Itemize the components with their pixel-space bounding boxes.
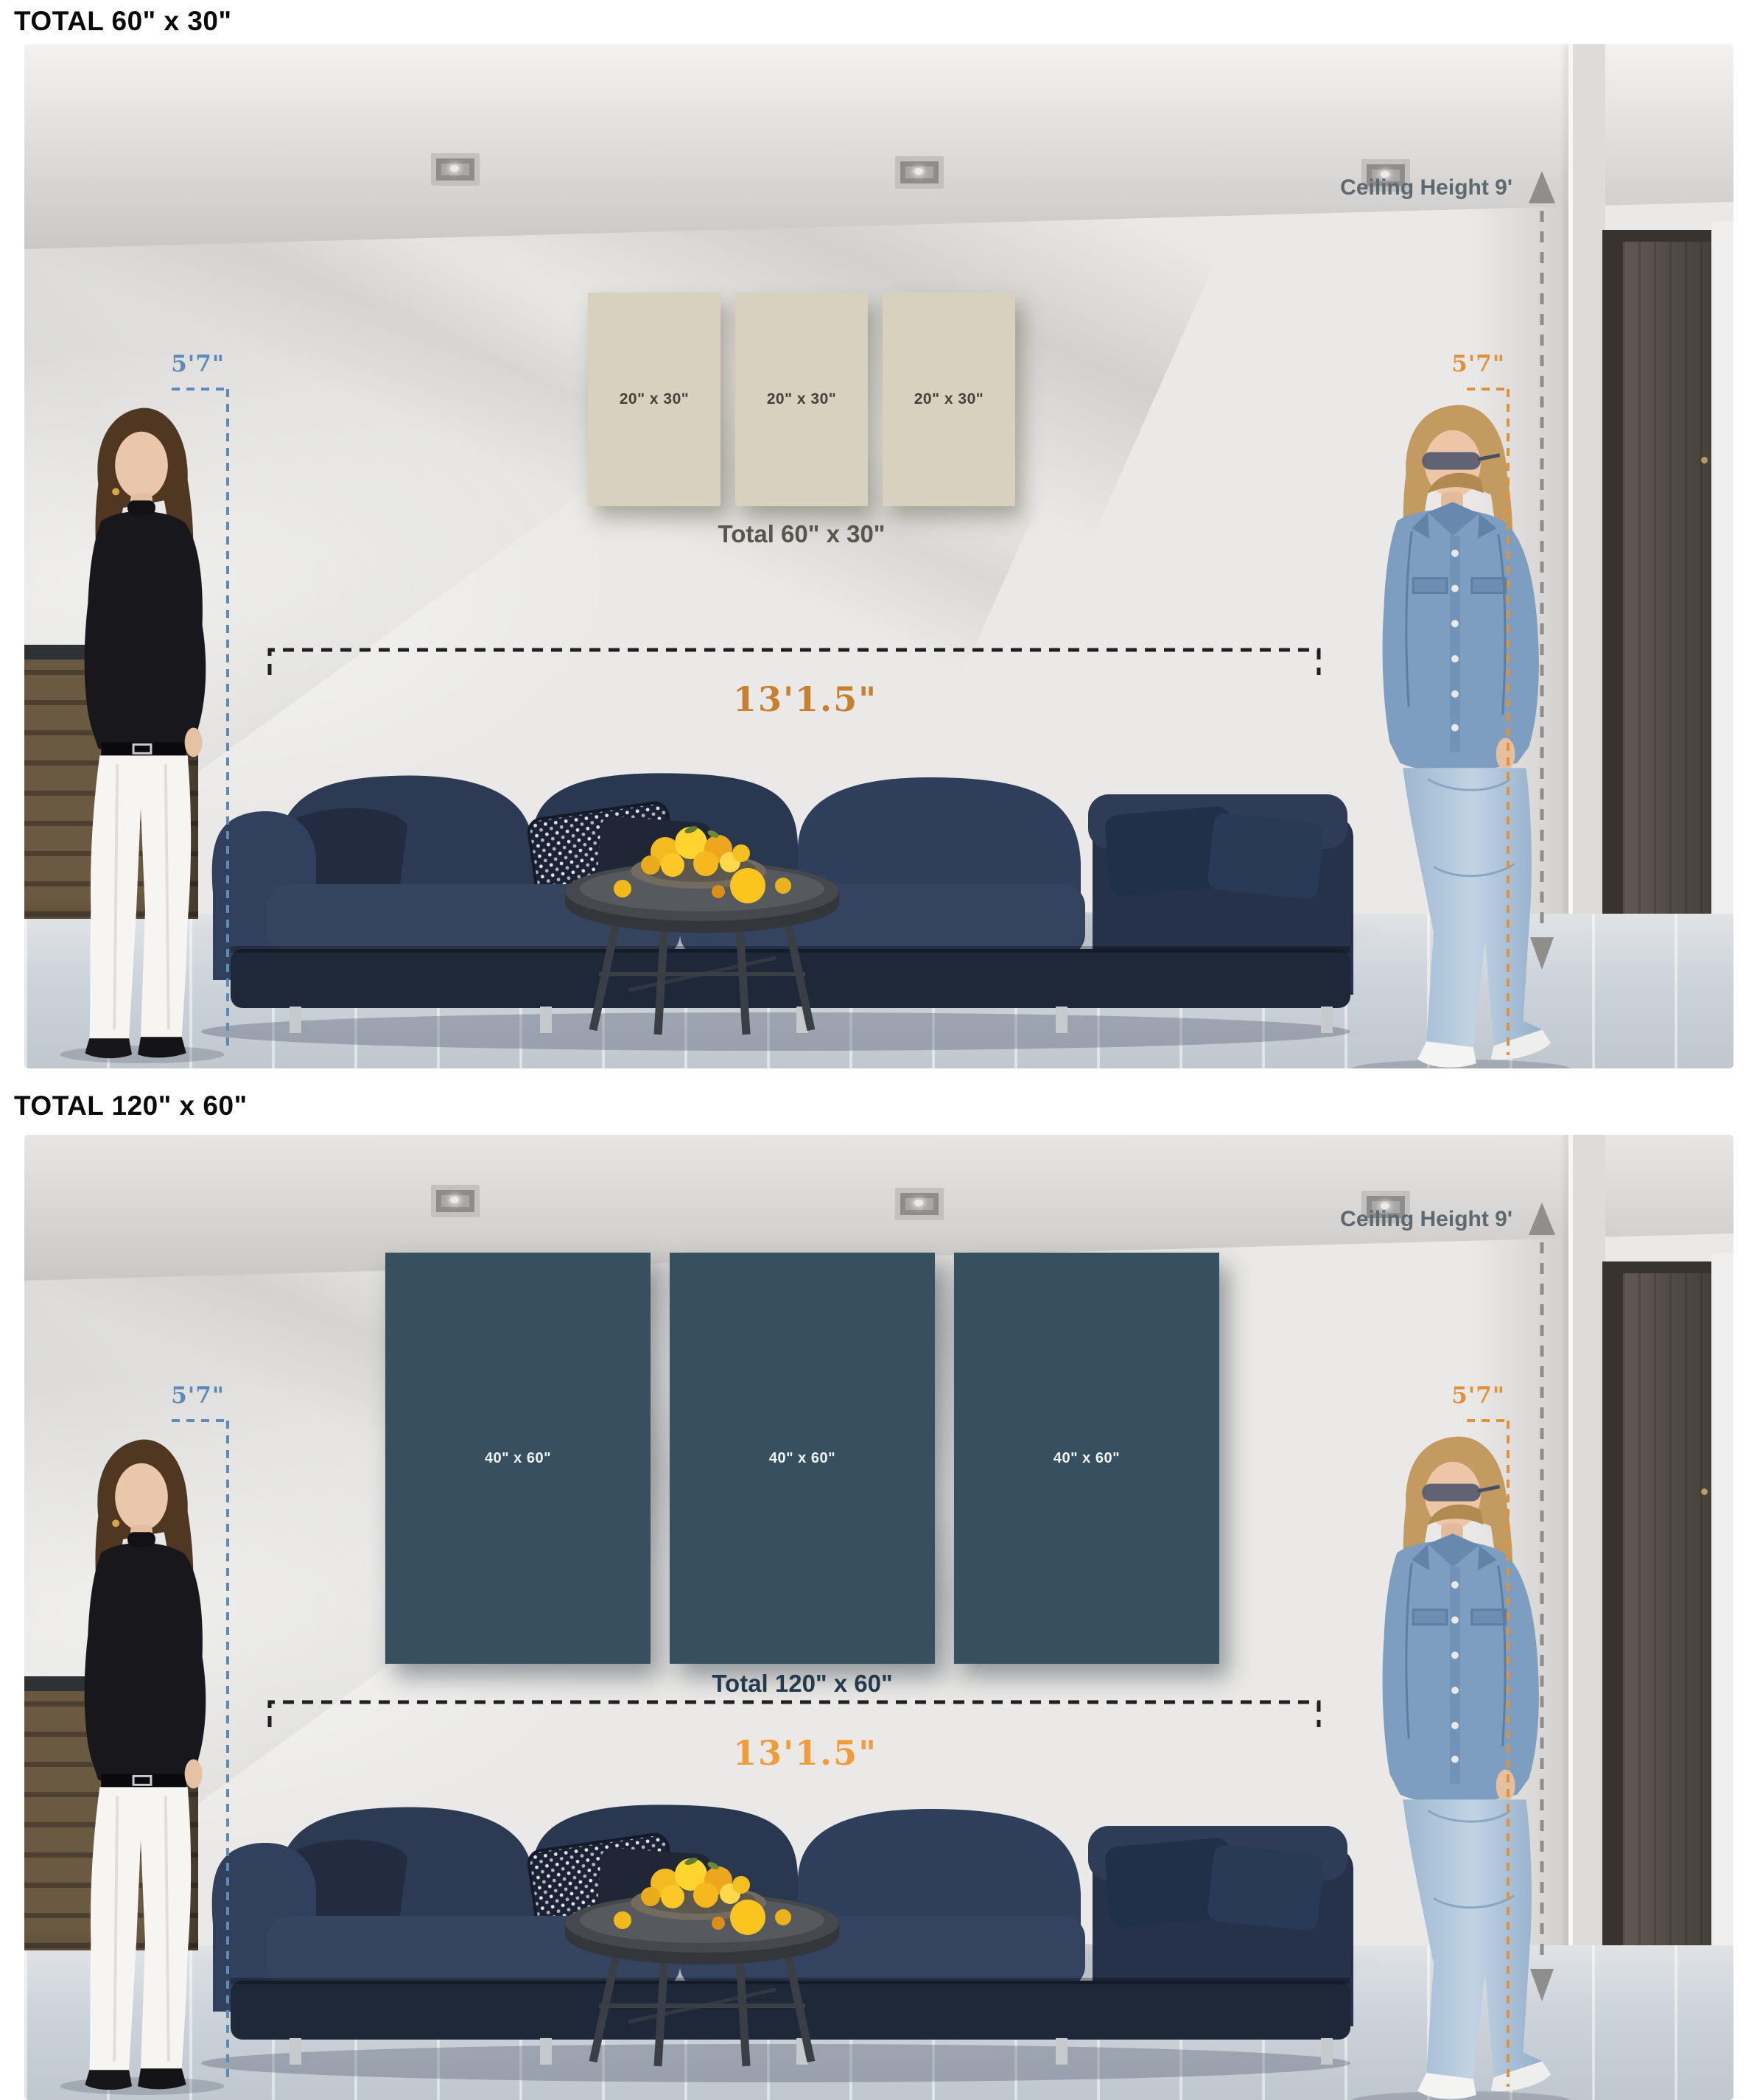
section-heading: TOTAL 60" x 30" [14,6,232,37]
canvas-panel-label: 40" x 60" [1053,1450,1120,1467]
section-heading: TOTAL 120" x 60" [14,1091,248,1121]
door-trim [1711,1253,1733,2023]
section-120x60: TOTAL 120" x 60" [0,1068,1746,2100]
canvas-panel: 40" x 60" [670,1253,935,1664]
total-size-label: Total 60" x 30" [588,520,1015,548]
door-handle-icon [1701,1488,1708,1495]
ceiling-light [895,1188,944,1220]
canvas-panel: 20" x 30" [883,293,1015,506]
coffee-table [555,797,849,1040]
left-height-marker: 5'7" [133,351,225,377]
right-height-marker: 5'7" [1415,351,1505,377]
right-person [1317,1429,1582,2100]
door-trim [1711,221,1733,992]
ceiling-light [431,153,480,186]
canvas-panel-label: 20" x 30" [767,391,836,408]
size-guide-page: TOTAL 60" x 30" [0,0,1746,2100]
left-height-marker: 5'7" [133,1382,225,1409]
section-60x30: TOTAL 60" x 30" [0,0,1746,1068]
canvas-panel-label: 20" x 30" [620,391,689,408]
room-scene: 40" x 60" 40" x 60" 40" x 60" Total 120"… [24,1135,1733,2100]
coffee-table [555,1829,849,2072]
canvas-panel-label: 20" x 30" [914,391,984,408]
sofa-width-label: 13'1.5" [606,679,1004,719]
left-person [46,398,238,1065]
door-handle-icon [1701,457,1708,463]
canvas-panel: 20" x 30" [735,293,868,506]
ceiling-height-label: Ceiling Height 9' [1225,1207,1512,1232]
sofa-width-label: 13'1.5" [606,1733,1004,1773]
door [1623,242,1711,979]
canvas-panel-label: 40" x 60" [485,1450,551,1467]
canvas-panel: 20" x 30" [588,293,721,506]
ceiling-light [895,156,944,189]
room-photo: 40" x 60" 40" x 60" 40" x 60" Total 120"… [24,1135,1733,2100]
right-height-marker: 5'7" [1415,1382,1505,1409]
total-size-label: Total 120" x 60" [385,1670,1219,1698]
canvas-panel: 40" x 60" [385,1253,651,1664]
right-person [1317,398,1582,1068]
ceiling-light [431,1185,480,1217]
room-photo: 20" x 30" 20" x 30" 20" x 30" Total 60" … [24,44,1733,1068]
room-scene: 20" x 30" 20" x 30" 20" x 30" Total 60" … [24,44,1733,1068]
ceiling-height-label: Ceiling Height 9' [1225,175,1512,200]
left-person [46,1429,238,2096]
canvas-panel-label: 40" x 60" [769,1450,835,1467]
canvas-panel: 40" x 60" [954,1253,1219,1664]
door [1623,1273,1711,2010]
